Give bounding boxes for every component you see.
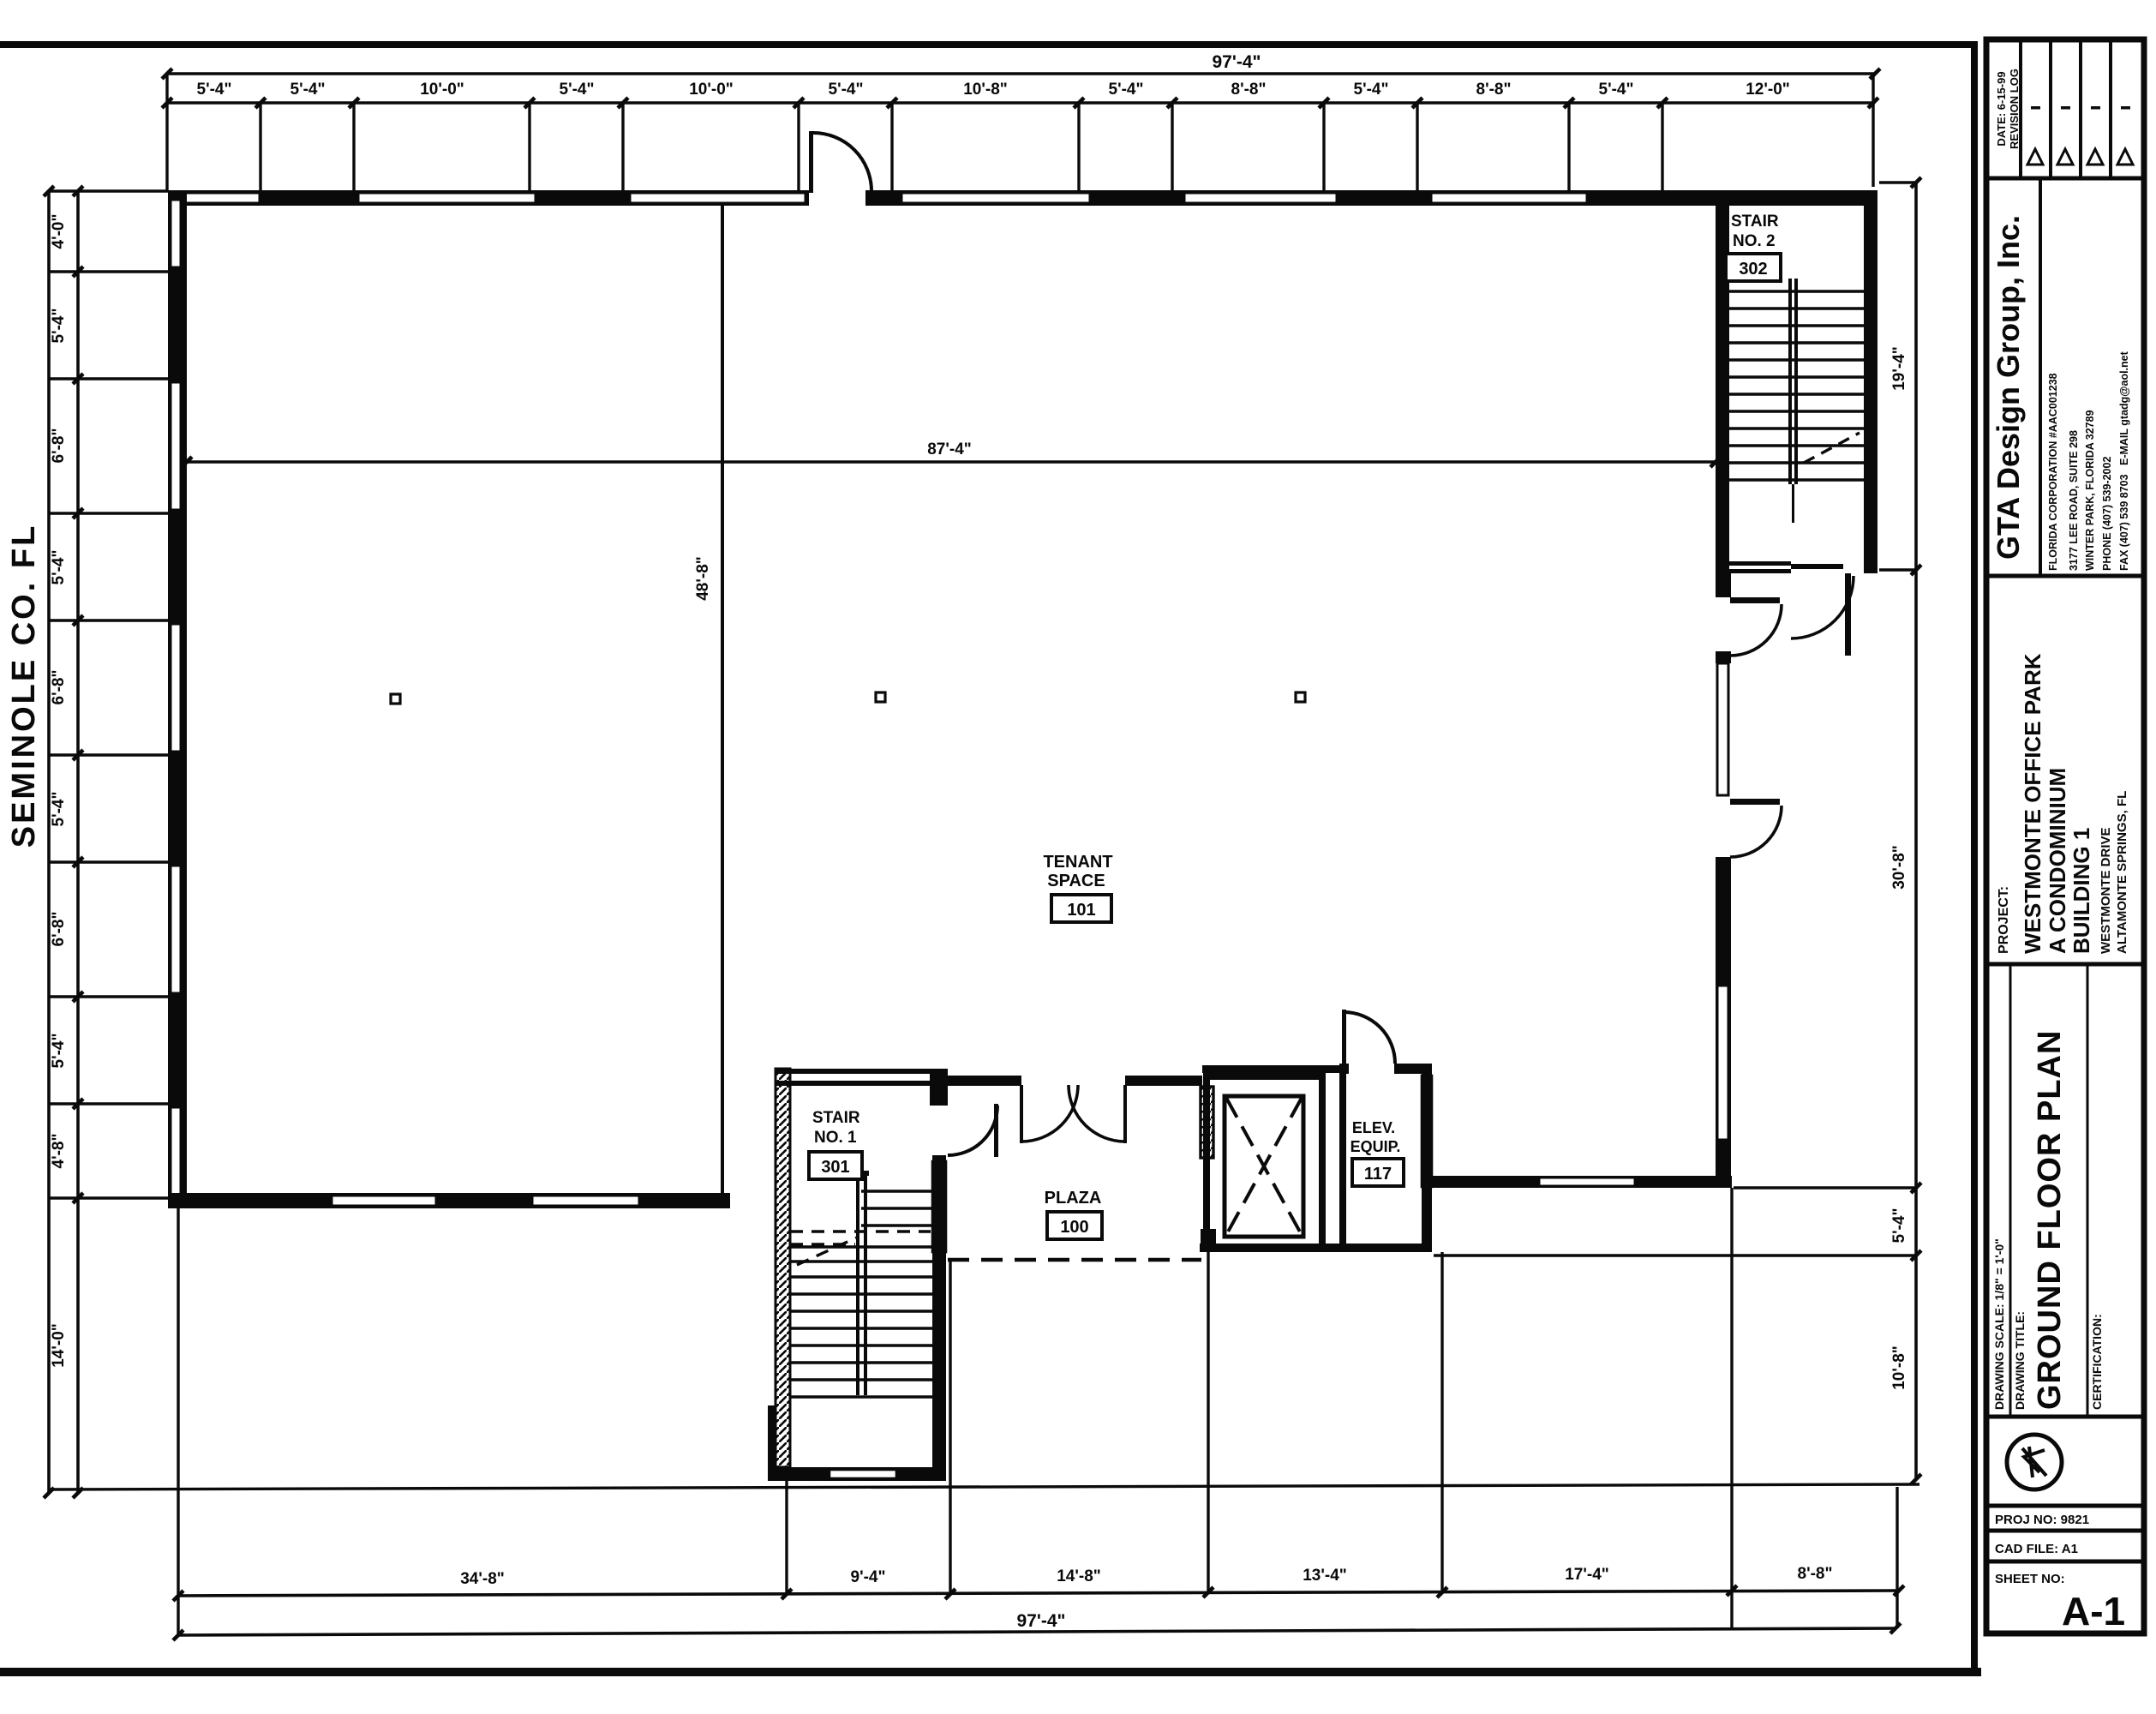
svg-text:301: 301 — [821, 1158, 849, 1177]
svg-text:WESTMONTE DRIVE: WESTMONTE DRIVE — [2099, 827, 2113, 954]
svg-text:17'-4": 17'-4" — [1565, 1566, 1609, 1584]
svg-text:5'-4": 5'-4" — [560, 81, 595, 99]
svg-text:302: 302 — [1739, 260, 1767, 279]
svg-text:STAIR: STAIR — [1731, 213, 1779, 231]
svg-text:FLORIDA CORPORATION #AAC001238: FLORIDA CORPORATION #AAC001238 — [2047, 373, 2059, 571]
svg-text:PROJECT:: PROJECT: — [1997, 886, 2011, 954]
svg-text:5'-4": 5'-4" — [290, 81, 326, 99]
svg-text:ELEV.: ELEV. — [1352, 1119, 1395, 1136]
svg-text:5'-4": 5'-4" — [50, 792, 68, 827]
svg-text:6'-8": 6'-8" — [50, 912, 68, 947]
svg-text:CERTIFICATION:: CERTIFICATION: — [2090, 1314, 2104, 1410]
svg-text:REVISION LOG: REVISION LOG — [2008, 69, 2021, 149]
svg-text:4'-0": 4'-0" — [50, 214, 68, 249]
svg-text:DRAWING TITLE:: DRAWING TITLE: — [2013, 1311, 2027, 1410]
svg-text:CAD FILE: A1: CAD FILE: A1 — [1995, 1542, 2078, 1556]
svg-text:8'-8": 8'-8" — [1798, 1565, 1833, 1583]
svg-text:TENANT: TENANT — [1043, 853, 1112, 872]
svg-text:WESTMONTE OFFICE PARK: WESTMONTE OFFICE PARK — [2020, 653, 2045, 954]
svg-text:PHONE (407) 539-2002: PHONE (407) 539-2002 — [2101, 457, 2113, 571]
svg-text:A-1: A-1 — [2062, 1589, 2125, 1633]
svg-text:DRAWING SCALE: 1/8" = 1'-0": DRAWING SCALE: 1/8" = 1'-0" — [1992, 1238, 2006, 1410]
svg-text:87'-4": 87'-4" — [927, 440, 972, 458]
svg-text:101: 101 — [1067, 901, 1095, 920]
svg-text:30'-8": 30'-8" — [1890, 845, 1908, 890]
svg-text:10'-0": 10'-0" — [420, 81, 464, 99]
svg-text:10'-0": 10'-0" — [689, 81, 734, 99]
svg-text:PROJ NO: 9821: PROJ NO: 9821 — [1995, 1513, 2089, 1527]
svg-text:10'-8": 10'-8" — [1890, 1345, 1908, 1390]
svg-text:14'-8": 14'-8" — [1057, 1567, 1101, 1585]
svg-text:5'-4": 5'-4" — [1599, 81, 1634, 99]
svg-text:6'-8": 6'-8" — [50, 670, 68, 705]
svg-text:6'-8": 6'-8" — [50, 428, 68, 464]
svg-text:117: 117 — [1364, 1165, 1392, 1184]
svg-text:5'-4": 5'-4" — [1109, 81, 1144, 99]
svg-text:4'-8": 4'-8" — [50, 1134, 68, 1169]
svg-text:5'-4": 5'-4" — [50, 1034, 68, 1069]
svg-text:5'-4": 5'-4" — [197, 81, 232, 99]
svg-text:19'-4": 19'-4" — [1890, 346, 1908, 391]
svg-text:13'-4": 13'-4" — [1303, 1567, 1347, 1585]
svg-text:48'-8": 48'-8" — [694, 556, 712, 601]
svg-text:5'-4": 5'-4" — [50, 550, 68, 585]
svg-text:14'-0": 14'-0" — [50, 1323, 68, 1368]
svg-text:A CONDOMINIUM: A CONDOMINIUM — [2045, 768, 2070, 954]
svg-text:5'-4": 5'-4" — [1890, 1208, 1908, 1244]
svg-text:100: 100 — [1060, 1218, 1088, 1237]
svg-text:8'-8": 8'-8" — [1476, 81, 1512, 99]
svg-text:97'-4": 97'-4" — [1017, 1611, 1066, 1631]
svg-text:FAX (407) 539 8703 E-MAIL gt: FAX (407) 539 8703 E-MAIL gtadg@aol.net — [2118, 351, 2130, 571]
svg-text:10'-8": 10'-8" — [963, 81, 1008, 99]
svg-text:BUILDING 1: BUILDING 1 — [2069, 828, 2094, 954]
svg-text:3177 LEE ROAD, SUITE 298: 3177 LEE ROAD, SUITE 298 — [2068, 430, 2080, 571]
svg-text:9'-4": 9'-4" — [851, 1568, 886, 1586]
svg-text:DATE: 6-15-99: DATE: 6-15-99 — [1995, 71, 2008, 146]
svg-text:GTA Design Group, Inc.: GTA Design Group, Inc. — [1991, 215, 2026, 560]
svg-text:12'-0": 12'-0" — [1746, 81, 1790, 99]
svg-text:5'-4": 5'-4" — [829, 81, 864, 99]
svg-text:5'-4": 5'-4" — [1354, 81, 1389, 99]
svg-text:ALTAMONTE SPRINGS, FL: ALTAMONTE SPRINGS, FL — [2115, 791, 2129, 954]
svg-text:STAIR: STAIR — [812, 1109, 860, 1127]
svg-text:97'-4": 97'-4" — [1213, 52, 1261, 72]
svg-text:GROUND FLOOR PLAN: GROUND FLOOR PLAN — [2032, 1030, 2068, 1410]
svg-text:SPACE: SPACE — [1047, 872, 1105, 890]
svg-text:NO. 2: NO. 2 — [1733, 232, 1776, 250]
svg-text:EQUIP.: EQUIP. — [1350, 1138, 1401, 1155]
svg-text:PLAZA: PLAZA — [1045, 1189, 1102, 1208]
svg-text:5'-4": 5'-4" — [50, 309, 68, 344]
svg-text:WINTER PARK, FLORIDA 32789: WINTER PARK, FLORIDA 32789 — [2084, 410, 2096, 571]
svg-text:NO. 1: NO. 1 — [814, 1129, 857, 1147]
svg-text:SHEET NO:: SHEET NO: — [1995, 1572, 2065, 1586]
svg-text:8'-8": 8'-8" — [1231, 81, 1267, 99]
svg-text:34'-8": 34'-8" — [460, 1570, 505, 1588]
svg-text:SEMINOLE CO. FL: SEMINOLE CO. FL — [6, 524, 42, 848]
